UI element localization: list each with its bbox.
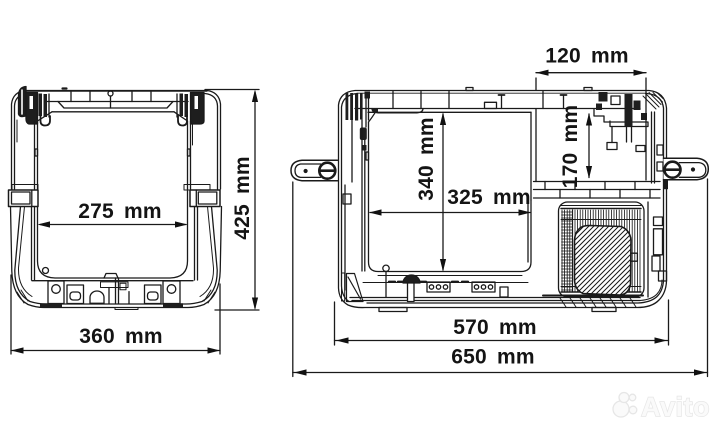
svg-text:120 mm: 120 mm [545, 45, 628, 68]
svg-text:325 mm: 325 mm [447, 186, 530, 209]
svg-text:360 mm: 360 mm [79, 325, 162, 348]
svg-text:425 mm: 425 mm [231, 156, 254, 239]
svg-text:Avito: Avito [641, 392, 710, 422]
svg-text:340 mm: 340 mm [415, 117, 438, 200]
svg-text:275 mm: 275 mm [78, 200, 161, 223]
svg-text:570 mm: 570 mm [453, 316, 536, 339]
svg-text:170 mm: 170 mm [559, 105, 582, 188]
svg-text:650 mm: 650 mm [451, 346, 534, 369]
